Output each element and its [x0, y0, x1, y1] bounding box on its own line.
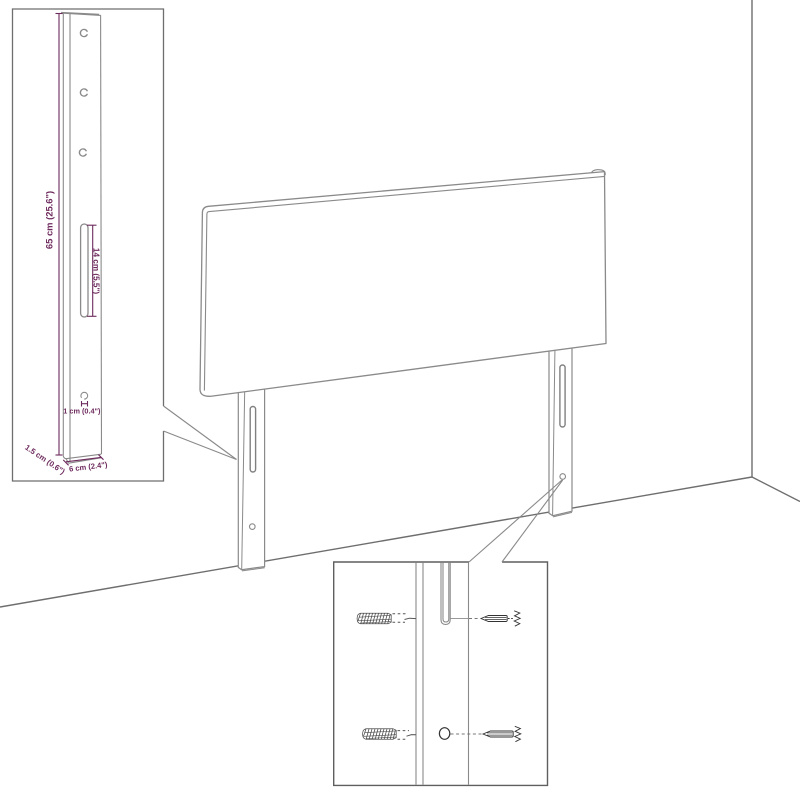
svg-text:65 cm (25.6"): 65 cm (25.6") [43, 191, 54, 249]
svg-text:14 cm (5.5"): 14 cm (5.5") [92, 248, 101, 294]
svg-text:1 cm (0.4"): 1 cm (0.4") [63, 407, 101, 416]
